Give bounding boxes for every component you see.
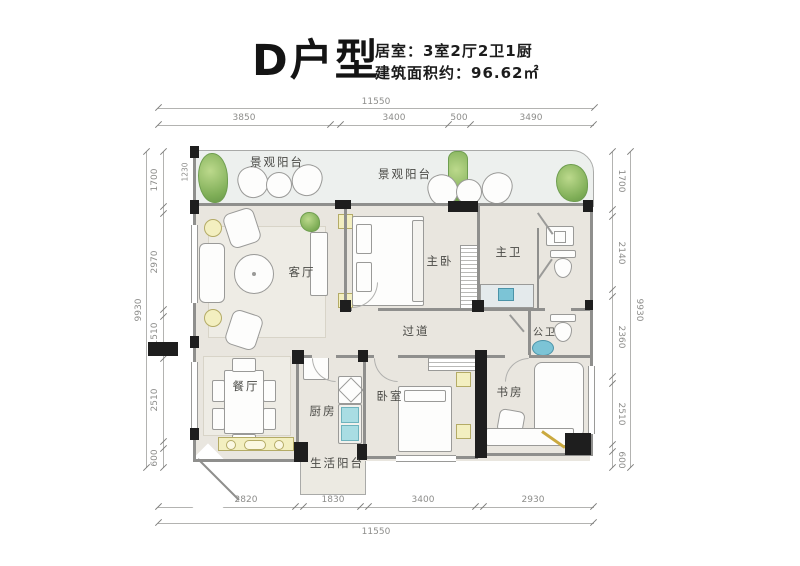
window: [588, 366, 595, 434]
dim-tick: [143, 464, 150, 471]
room-label-corridor: 过道: [403, 323, 430, 339]
dim-top-seg-2: 3400: [383, 113, 406, 123]
dim-tick: [472, 503, 479, 510]
dim-left-seg-2: 2970: [150, 251, 160, 274]
nightstand: [456, 372, 471, 387]
dim-line-left-segments: [163, 152, 164, 468]
room-label-balcony-right: 景观阳台: [378, 166, 432, 182]
wall-column: [340, 300, 351, 312]
room-label-balcony-left: 景观阳台: [250, 154, 304, 170]
study-bed: [534, 362, 584, 438]
dim-tick: [590, 519, 597, 526]
toilet-tank: [550, 250, 576, 258]
dining-chair: [263, 408, 276, 430]
bedroom-wardrobe: [428, 357, 478, 371]
dim-bottom-seg-3: 3400: [412, 495, 435, 505]
dim-line-bottom-total: [158, 523, 594, 524]
toilet-tank: [550, 314, 576, 322]
dim-tick: [591, 104, 598, 111]
balcony-table: [266, 172, 292, 198]
dining-chair: [212, 380, 225, 402]
dim-tick: [627, 148, 634, 155]
dim-right-seg-3: 2360: [616, 326, 626, 349]
window: [396, 455, 456, 462]
wall: [195, 203, 592, 206]
dim-tick: [590, 503, 597, 510]
dim-line-top-total: [158, 108, 594, 109]
wall: [528, 310, 531, 356]
planter-left-icon: [198, 153, 228, 203]
floor-plan-page: D户型 居室：3室2厅2卫1厨 建筑面积约：96.62㎡ 11550 3850 …: [0, 0, 800, 566]
dim-tick: [160, 445, 167, 452]
coffee-table-center: [252, 272, 256, 276]
counter-tile: [341, 425, 359, 441]
unit-area-info: 建筑面积约：96.62㎡: [375, 62, 539, 83]
room-label-service-balcony: 生活阳台: [310, 455, 364, 471]
door-opening: [312, 355, 336, 358]
dim-tick: [590, 121, 597, 128]
wall-column: [190, 146, 199, 158]
wall-column: [335, 200, 351, 209]
room-label-study: 书房: [497, 384, 524, 400]
dim-tick: [609, 464, 616, 471]
dim-tick: [143, 148, 150, 155]
dim-top-seg-1: 3850: [233, 113, 256, 123]
wall: [477, 205, 480, 308]
wall-column: [190, 428, 199, 440]
wash-basin: [532, 340, 554, 356]
door-opening: [505, 355, 529, 358]
bed-runner: [412, 220, 424, 302]
window: [191, 225, 198, 303]
wall-column: [294, 442, 308, 462]
dim-right-seg-1: 1700: [616, 170, 626, 193]
dim-line-right-segments: [612, 152, 613, 468]
room-label-kitchen: 厨房: [310, 403, 337, 419]
wall-column: [472, 300, 484, 312]
dim-tick: [160, 355, 167, 362]
dim-line-left-total: [146, 152, 147, 468]
counter-tile: [341, 407, 359, 423]
dim-left-seg-5: 600: [150, 449, 160, 466]
side-table: [204, 219, 222, 237]
dim-tick: [292, 503, 299, 510]
wall-column: [583, 200, 593, 212]
dim-top-seg-3: 500: [450, 113, 467, 123]
dim-right-seg-2: 2140: [616, 242, 626, 265]
wall-column: [358, 350, 368, 362]
wall-column: [148, 342, 178, 356]
sink-basin: [554, 231, 566, 243]
pillow: [404, 390, 446, 402]
sideboard-dish: [274, 440, 284, 450]
dim-tick: [337, 121, 344, 128]
dim-tick: [365, 503, 372, 510]
wall: [296, 355, 593, 358]
wall-column: [190, 200, 199, 214]
dining-chair: [212, 408, 225, 430]
dim-top-seg-4: 3490: [520, 113, 543, 123]
dim-tick: [480, 503, 487, 510]
dim-line-right-total: [630, 152, 631, 468]
planter-right-icon: [556, 164, 588, 202]
dim-tick: [357, 503, 364, 510]
room-label-bedroom: 卧室: [377, 388, 404, 404]
dim-tick: [155, 503, 162, 510]
window: [191, 362, 198, 428]
dim-tick: [155, 121, 162, 128]
room-label-public-bath: 公卫: [533, 324, 557, 339]
wall: [344, 205, 347, 308]
dim-right-seg-4: 2510: [616, 403, 626, 426]
wall-column: [292, 350, 304, 364]
wall-column: [190, 336, 199, 348]
room-label-dining: 餐厅: [233, 378, 260, 394]
dim-left-seg-4: 2510: [150, 389, 160, 412]
dim-tick: [627, 464, 634, 471]
wall-column: [475, 350, 487, 458]
unit-layout-info: 居室：3室2厅2卫1厨: [375, 40, 533, 61]
dim-tick: [609, 448, 616, 455]
dim-left-seg-1: 1700: [150, 169, 160, 192]
pillow: [356, 224, 372, 254]
sideboard-dish: [226, 440, 236, 450]
dim-bottom-seg-2: 1830: [322, 495, 345, 505]
room-label-master-bath: 主卫: [496, 244, 523, 260]
dim-right-total: 9930: [634, 299, 644, 322]
dim-tick: [155, 519, 162, 526]
dim-line-top-segments: [158, 125, 594, 126]
dim-tick: [300, 503, 307, 510]
dim-tick: [609, 380, 616, 387]
dim-tick: [160, 148, 167, 155]
dim-tick: [155, 104, 162, 111]
dim-top-total: 11550: [362, 97, 391, 107]
sofa: [199, 243, 225, 303]
page-title: D户型: [252, 26, 380, 88]
dim-tick: [327, 121, 334, 128]
door-opening: [374, 355, 398, 358]
room-label-master-bedroom: 主卧: [427, 253, 454, 269]
sideboard-dish: [244, 440, 266, 450]
side-table: [204, 309, 222, 327]
nightstand: [456, 424, 471, 439]
wall-column: [585, 300, 593, 310]
dim-bottom-seg-4: 2930: [522, 495, 545, 505]
dim-tick: [160, 313, 167, 320]
dim-tick: [609, 213, 616, 220]
dim-tick: [467, 121, 474, 128]
dim-tick: [160, 464, 167, 471]
dim-tick: [160, 210, 167, 217]
bath-mat: [498, 288, 514, 301]
door-opening: [545, 308, 571, 311]
dim-tick: [609, 148, 616, 155]
dim-right-seg-5: 600: [616, 451, 626, 468]
dim-tick: [609, 293, 616, 300]
dining-chair: [263, 380, 276, 402]
wall: [537, 228, 539, 308]
room-label-living: 客厅: [289, 264, 316, 280]
door-opening: [352, 308, 378, 311]
potted-plant-icon: [300, 212, 320, 232]
wall-column: [448, 201, 478, 212]
wall: [193, 459, 302, 462]
dim-bottom-total: 11550: [362, 527, 391, 537]
dim-left-total: 9930: [134, 299, 144, 322]
dining-chair: [232, 358, 256, 372]
wall-column: [565, 433, 591, 455]
dim-balcony-inner: 1230: [181, 162, 190, 181]
